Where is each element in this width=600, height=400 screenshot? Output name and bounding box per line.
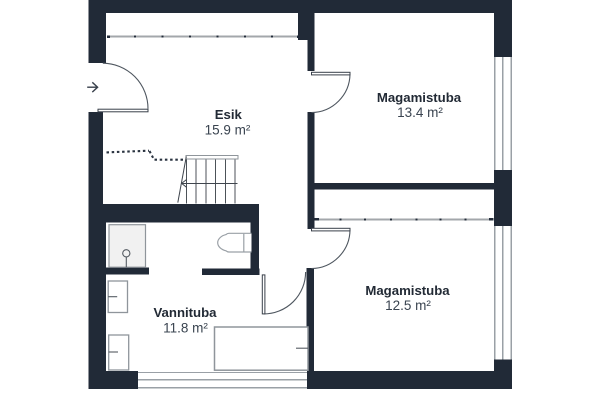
svg-text:15.9 m²: 15.9 m² <box>205 123 251 138</box>
svg-text:11.8 m²: 11.8 m² <box>163 320 208 335</box>
svg-text:13.4 m²: 13.4 m² <box>397 105 443 120</box>
svg-text:Vannituba: Vannituba <box>153 305 217 320</box>
svg-text:Esik: Esik <box>215 107 243 122</box>
svg-text:12.5 m²: 12.5 m² <box>385 298 431 313</box>
svg-text:Magamistuba: Magamistuba <box>365 283 450 298</box>
svg-text:Magamistuba: Magamistuba <box>377 90 462 105</box>
